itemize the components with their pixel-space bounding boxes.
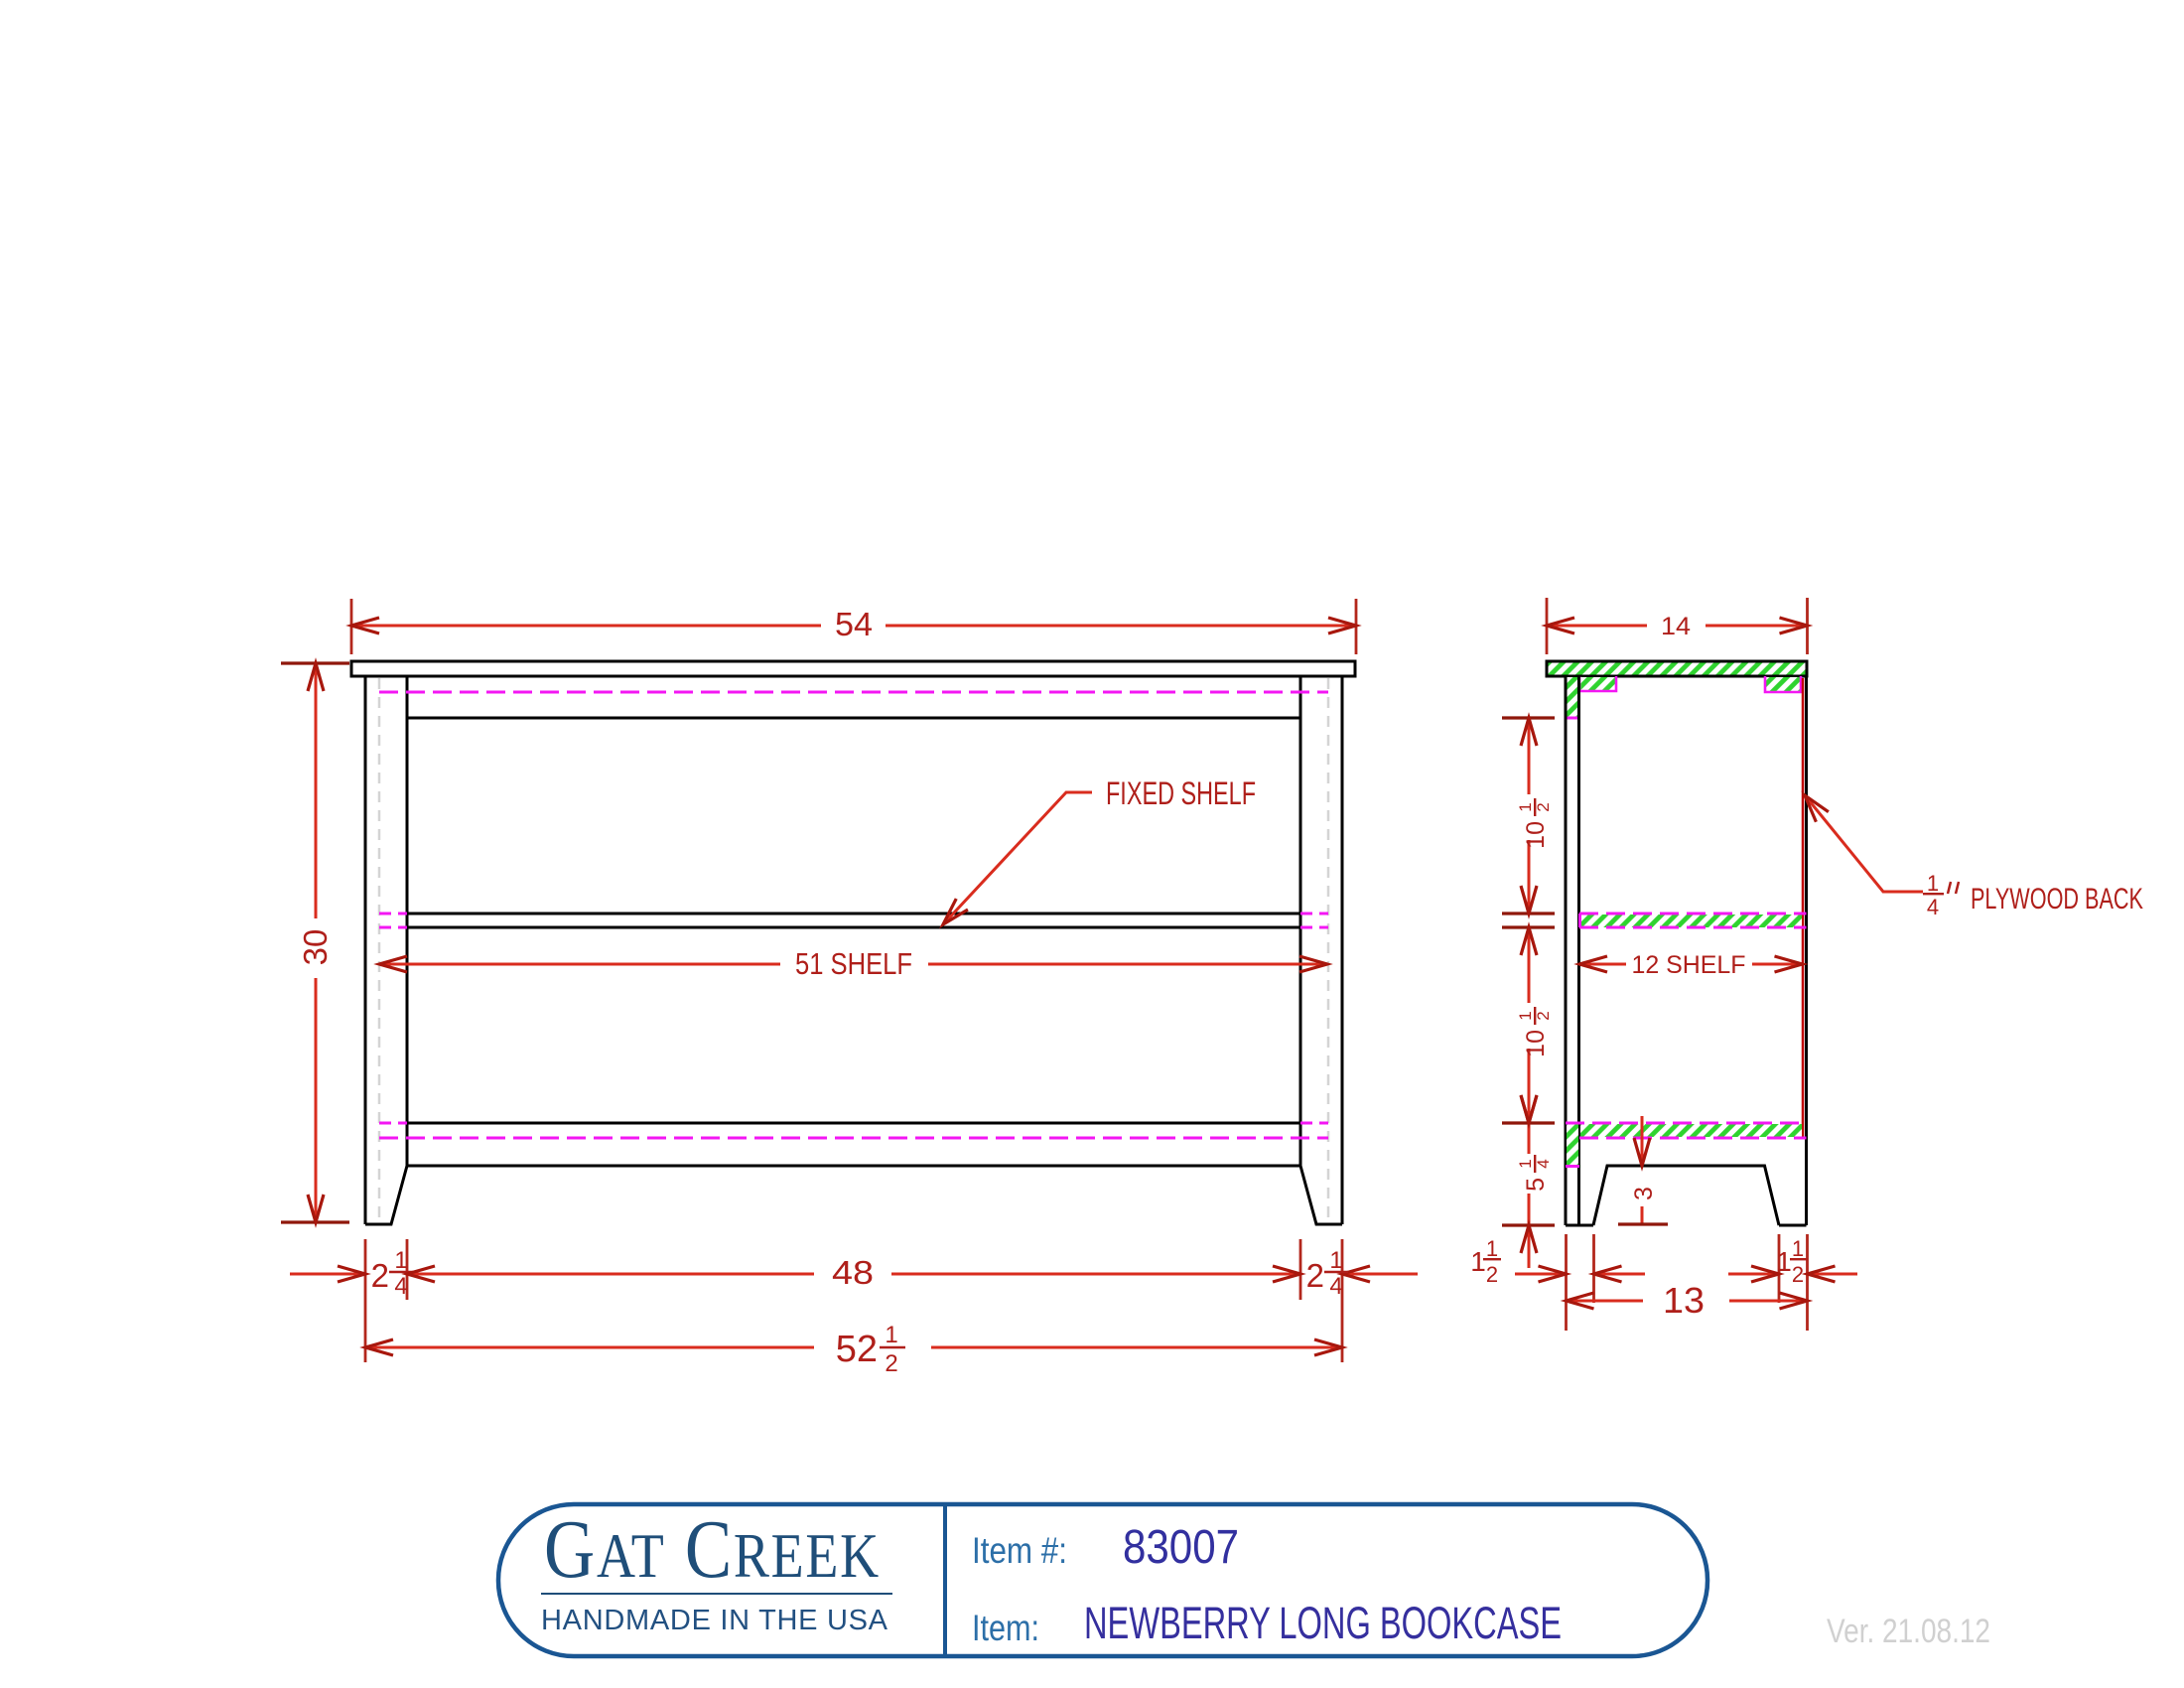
svg-text:2: 2 <box>1792 1262 1804 1287</box>
svg-text:12 SHELF: 12 SHELF <box>1632 951 1746 979</box>
svg-text:54: 54 <box>835 606 873 642</box>
svg-text:FIXED SHELF: FIXED SHELF <box>1106 775 1256 811</box>
svg-text:51 SHELF: 51 SHELF <box>795 946 912 981</box>
svg-text:Ver. 21.08.12: Ver. 21.08.12 <box>1827 1613 1990 1650</box>
svg-text:52: 52 <box>836 1329 878 1370</box>
svg-text:1: 1 <box>1516 802 1535 811</box>
svg-text:2: 2 <box>1534 1011 1553 1020</box>
svg-text:1: 1 <box>1486 1236 1498 1261</box>
svg-text:1: 1 <box>1470 1246 1486 1277</box>
svg-text:1: 1 <box>885 1322 897 1348</box>
svg-text:30: 30 <box>297 929 334 966</box>
svg-text:PLYWOOD BACK: PLYWOOD BACK <box>1971 883 2143 915</box>
svg-text:1: 1 <box>1776 1246 1792 1277</box>
svg-text:1: 1 <box>1927 871 1939 896</box>
svg-text:1: 1 <box>1329 1247 1342 1274</box>
svg-text:NEWBERRY LONG BOOKCASE: NEWBERRY LONG BOOKCASE <box>1084 1598 1562 1648</box>
svg-text:2: 2 <box>1534 802 1553 811</box>
svg-text:2: 2 <box>1486 1262 1498 1287</box>
svg-text:Item #:: Item #: <box>972 1530 1067 1571</box>
svg-text:83007: 83007 <box>1123 1521 1239 1574</box>
svg-text:48: 48 <box>832 1254 874 1291</box>
svg-text:2: 2 <box>885 1350 897 1377</box>
svg-text:1: 1 <box>1516 1159 1535 1168</box>
svg-text:4: 4 <box>1534 1159 1553 1168</box>
svg-text:2: 2 <box>1306 1257 1324 1294</box>
svg-text:10: 10 <box>1522 821 1550 849</box>
svg-text:4: 4 <box>1329 1273 1342 1300</box>
svg-text:1: 1 <box>1516 1011 1535 1020</box>
svg-text:2: 2 <box>371 1257 389 1294</box>
svg-text:4: 4 <box>1927 895 1939 919</box>
svg-text:4: 4 <box>394 1273 407 1300</box>
svg-text:3: 3 <box>1630 1187 1658 1200</box>
svg-text:13: 13 <box>1663 1280 1705 1321</box>
svg-text:1: 1 <box>1792 1236 1804 1261</box>
svg-text:HANDMADE IN THE USA: HANDMADE IN THE USA <box>541 1605 889 1636</box>
svg-text:10: 10 <box>1522 1030 1550 1057</box>
svg-text:5: 5 <box>1522 1178 1550 1192</box>
svg-text:14: 14 <box>1661 613 1691 640</box>
svg-text:1: 1 <box>394 1247 407 1274</box>
svg-text:Item:: Item: <box>972 1608 1039 1648</box>
